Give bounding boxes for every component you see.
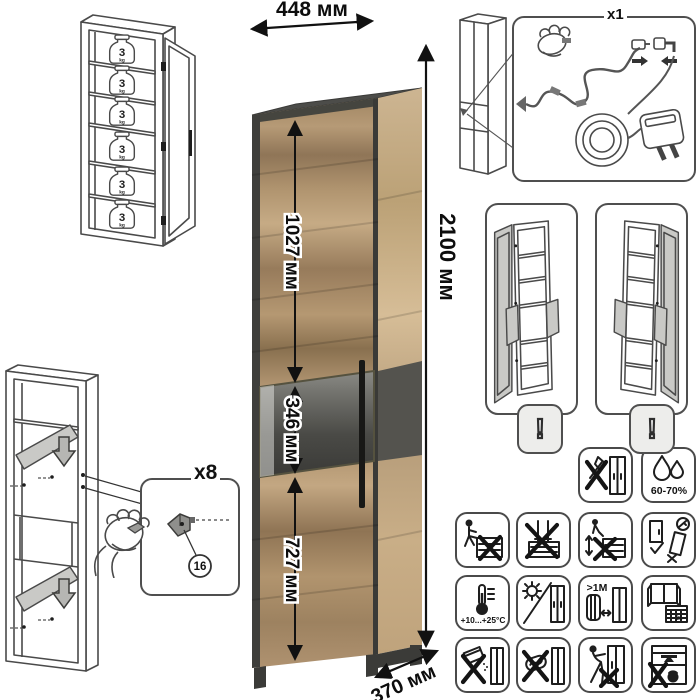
shelf-support-detail: 16 [142,480,238,594]
no-sitting-icon [460,517,506,563]
humidity-icon: 60-70% [646,452,692,498]
door-variant-right-panel [595,203,688,415]
svg-text:3: 3 [119,47,125,59]
svg-text:kg: kg [119,189,125,195]
temperature-label: +10...+25°C [460,615,505,625]
power-adapter-icon [639,109,687,163]
care-icon-humidity-range: 60-70% [641,447,696,503]
no-standing-icon [521,517,567,563]
display-section-dimension: 346 мм [281,397,302,462]
care-icon-no-dragging [578,637,633,693]
heater-distance-label: >1M [586,582,607,594]
care-icon-no-standing [516,512,571,568]
care-icon-adjust-doors [641,512,696,568]
coiled-cable-icon [576,114,628,166]
upper-door-dimension: 1027 мм [281,214,302,290]
hand-icon [84,490,156,578]
exclamation-icon: ! [647,413,656,445]
adjust-doors-icon [646,517,692,563]
heater-distance-icon: >1M [583,580,629,626]
hand-plug-icon [536,25,571,57]
care-icon-no-sitting [455,512,510,568]
screw-icon [190,517,195,523]
no-overloading-icon [646,642,692,688]
cabinet-door-right [597,205,686,413]
door-variant-left-panel [485,203,578,415]
led-kit-contents [514,18,694,180]
care-icon-no-direct-sunlight [516,575,571,631]
lower-door-dimension: 727 мм [281,537,302,602]
care-icons-grid: 60-70% [452,445,700,697]
warning-badge: ! [629,404,675,454]
svg-text:3: 3 [119,144,125,156]
height-dimension: 2100 мм [435,213,460,301]
led-strip-cable [526,48,640,106]
care-icon-no-sharp-tools [578,447,633,503]
calendar-day-label: 21 [675,616,682,622]
no-dragging-icon [583,642,629,688]
open-door [161,38,195,244]
no-climbing-icon [583,517,629,563]
product-render: 448 мм 1027 мм 346 мм 727 мм 2100 мм 370… [240,0,460,700]
care-icon-no-abrasives [455,637,510,693]
care-icon-no-scrubbing [516,637,571,693]
cabinet-door-left [487,205,576,413]
cabinet-body [252,88,422,689]
warning-badge: ! [517,404,563,454]
instruction-sheet: 3kg 3kg 3kg 3kg 3kg 3kg [0,0,700,700]
shelf-support-icon [168,514,190,536]
fastener-quantity-label: x8 [191,462,220,483]
exclamation-icon: ! [535,413,544,445]
plug-connectors-icon [632,38,677,66]
care-icon-ventilate-room: 21 [641,575,696,631]
svg-text:kg: kg [119,222,125,228]
svg-text:3: 3 [119,78,125,90]
no-sharp-tools-icon [583,452,629,498]
no-scrubbing-icon [521,642,567,688]
svg-text:3: 3 [119,109,125,121]
care-icon-no-overloading [641,637,696,693]
svg-text:kg: kg [119,154,125,160]
care-icon-heater-distance: >1M [578,575,633,631]
shelf-load-diagram: 3kg 3kg 3kg 3kg 3kg 3kg [55,4,205,249]
led-kit-panel [512,16,696,182]
care-icon-temperature-range: +10...+25°C [455,575,510,631]
part-number: 16 [194,561,207,573]
thermometer-icon: +10...+25°C [460,580,506,626]
svg-text:kg: kg [119,119,125,125]
no-abrasives-icon [460,642,506,688]
humidity-label: 60-70% [650,485,687,497]
no-sunlight-icon [521,580,567,626]
svg-text:3: 3 [119,179,125,191]
svg-text:3: 3 [119,212,125,224]
svg-text:kg: kg [119,88,125,94]
led-kit-quantity-label: x1 [604,7,627,22]
care-icon-no-climbing [578,512,633,568]
width-dimension: 448 мм [276,0,348,21]
svg-text:kg: kg [119,57,125,63]
open-window-icon: 21 [646,580,692,626]
door-handle [359,360,365,508]
